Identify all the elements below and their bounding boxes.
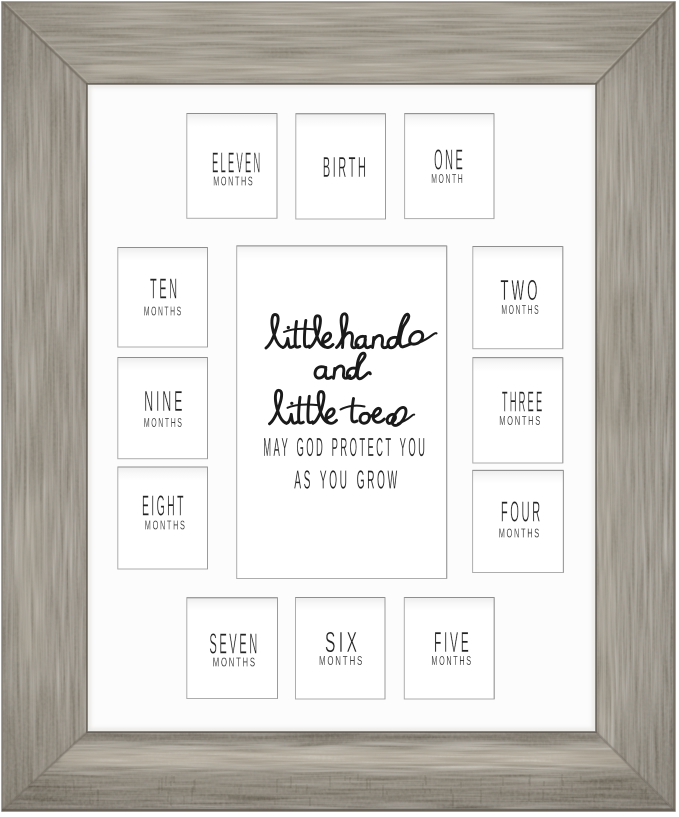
svg-text:MONTHS: MONTHS (213, 174, 254, 189)
svg-text:MONTHS: MONTHS (144, 415, 184, 430)
svg-text:MONTHS: MONTHS (499, 413, 542, 428)
svg-text:MONTHS: MONTHS (501, 302, 540, 317)
svg-text:MONTHS: MONTHS (213, 655, 257, 670)
svg-text:TEN: TEN (150, 274, 180, 306)
svg-text:MAY GOD PROTECT YOU: MAY GOD PROTECT YOU (263, 432, 427, 462)
svg-text:MONTHS: MONTHS (499, 526, 541, 541)
svg-text:MONTH: MONTH (431, 171, 464, 186)
svg-text:MONTHS: MONTHS (319, 653, 364, 668)
svg-text:BIRTH: BIRTH (323, 152, 369, 184)
svg-text:AS YOU GROW: AS YOU GROW (294, 465, 400, 495)
svg-text:MONTHS: MONTHS (144, 304, 183, 319)
svg-text:MONTHS: MONTHS (431, 653, 472, 668)
svg-text:FOUR: FOUR (501, 497, 543, 529)
svg-text:MONTHS: MONTHS (145, 518, 187, 533)
svg-text:NINE: NINE (144, 386, 185, 418)
